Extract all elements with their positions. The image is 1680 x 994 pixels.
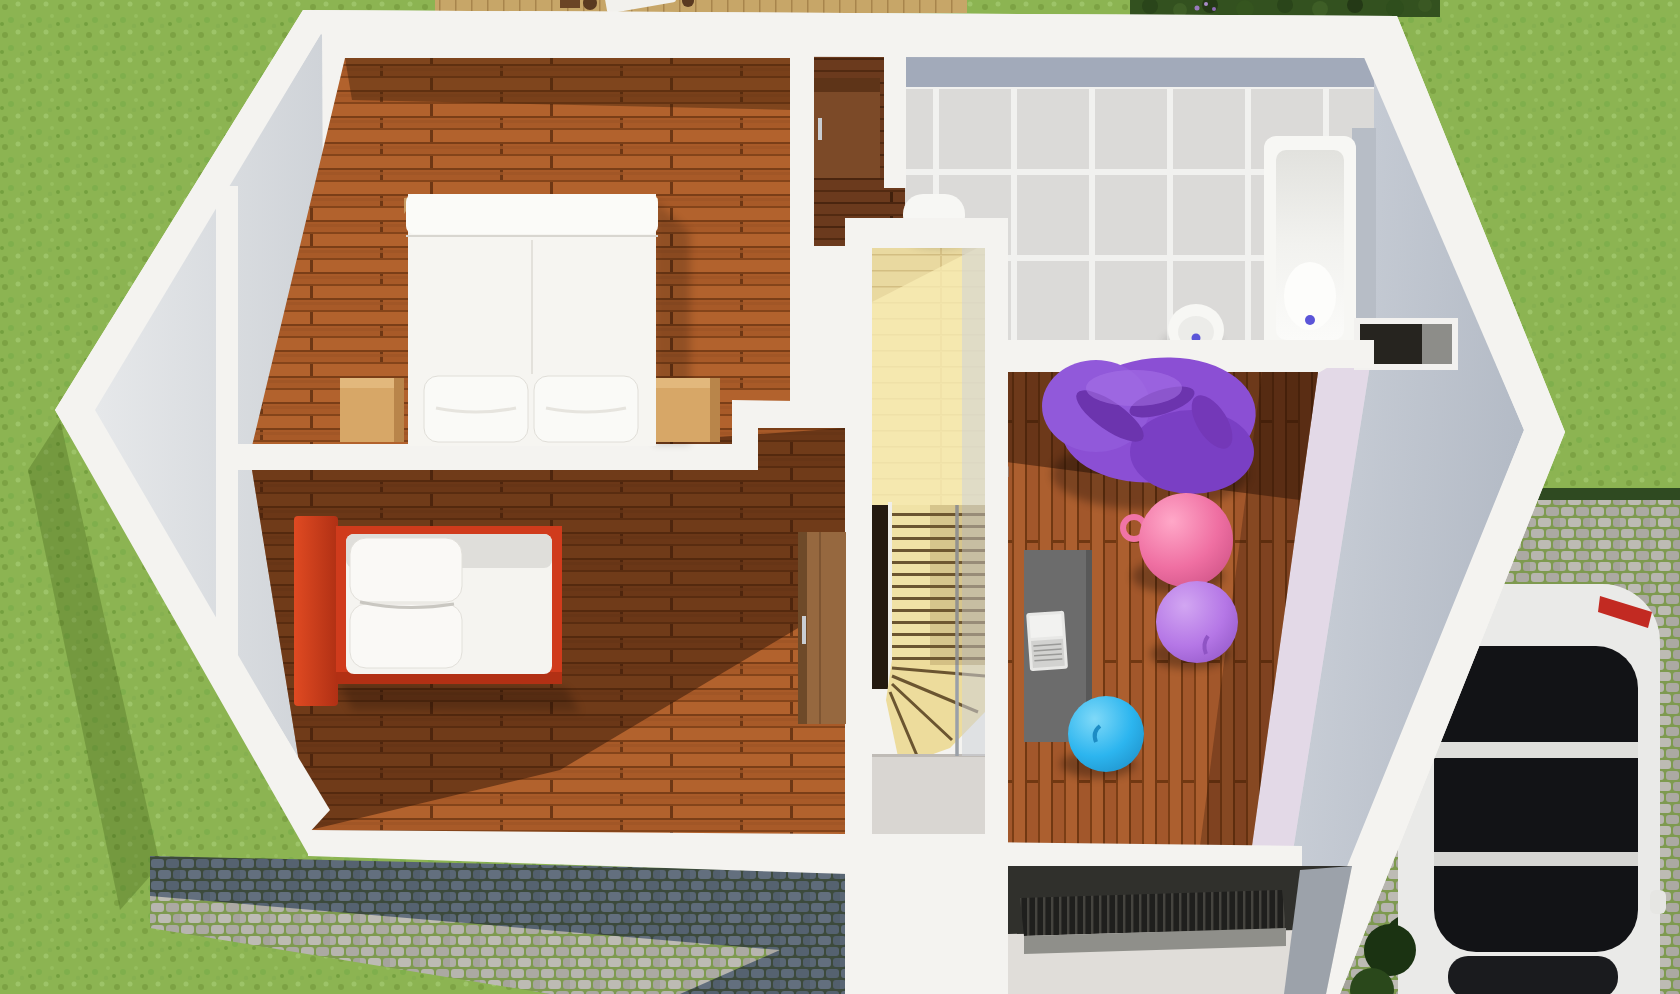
car-roof-bar	[1434, 852, 1638, 866]
car-mirror	[1650, 890, 1666, 914]
double-bed	[404, 194, 690, 446]
wall-stairhall-left	[845, 246, 872, 994]
pillow	[350, 604, 462, 668]
nightstand	[656, 378, 720, 442]
wall-masterbedroom-right	[790, 28, 814, 404]
hallway-wardrobe	[814, 78, 880, 178]
bathroom-tile-band	[905, 54, 1374, 87]
wardrobe-handle	[818, 118, 822, 140]
wall-playroom-bottom	[984, 842, 1302, 870]
car-windshield	[1448, 956, 1618, 994]
wardrobe-handle	[802, 616, 806, 644]
bed-headboard	[294, 516, 338, 706]
wall-stairhall-top	[845, 218, 1008, 248]
folded-duvet	[406, 194, 658, 234]
hedge-flowers	[1195, 6, 1200, 11]
bathtub-drain	[1305, 315, 1315, 325]
pillow	[350, 538, 462, 602]
stairwell-void	[872, 505, 888, 689]
wall-bathroom-left	[884, 28, 906, 188]
car-glass-roof	[1434, 646, 1638, 952]
laptop	[1026, 611, 1068, 672]
interior-wall	[216, 186, 238, 656]
car-roof-bar	[1434, 742, 1638, 758]
stair-base-slab	[872, 756, 985, 834]
stair-glass-panel	[962, 246, 985, 756]
wardrobe	[798, 532, 846, 724]
deck-chair-icon	[560, 0, 580, 8]
wall-stairhall-right	[985, 246, 1008, 994]
stair-base-shade	[930, 505, 985, 665]
wall-top	[303, 10, 1397, 58]
nightstand	[340, 378, 404, 442]
floor-plan-render	[0, 0, 1680, 994]
doormat-grate	[1020, 890, 1286, 936]
single-bed	[294, 516, 580, 712]
